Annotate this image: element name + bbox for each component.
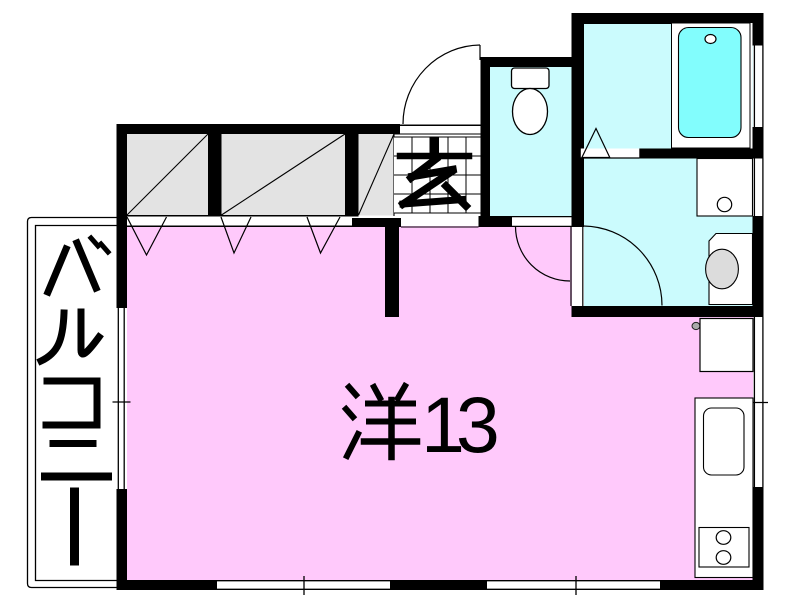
svg-text:13: 13 bbox=[421, 380, 497, 469]
